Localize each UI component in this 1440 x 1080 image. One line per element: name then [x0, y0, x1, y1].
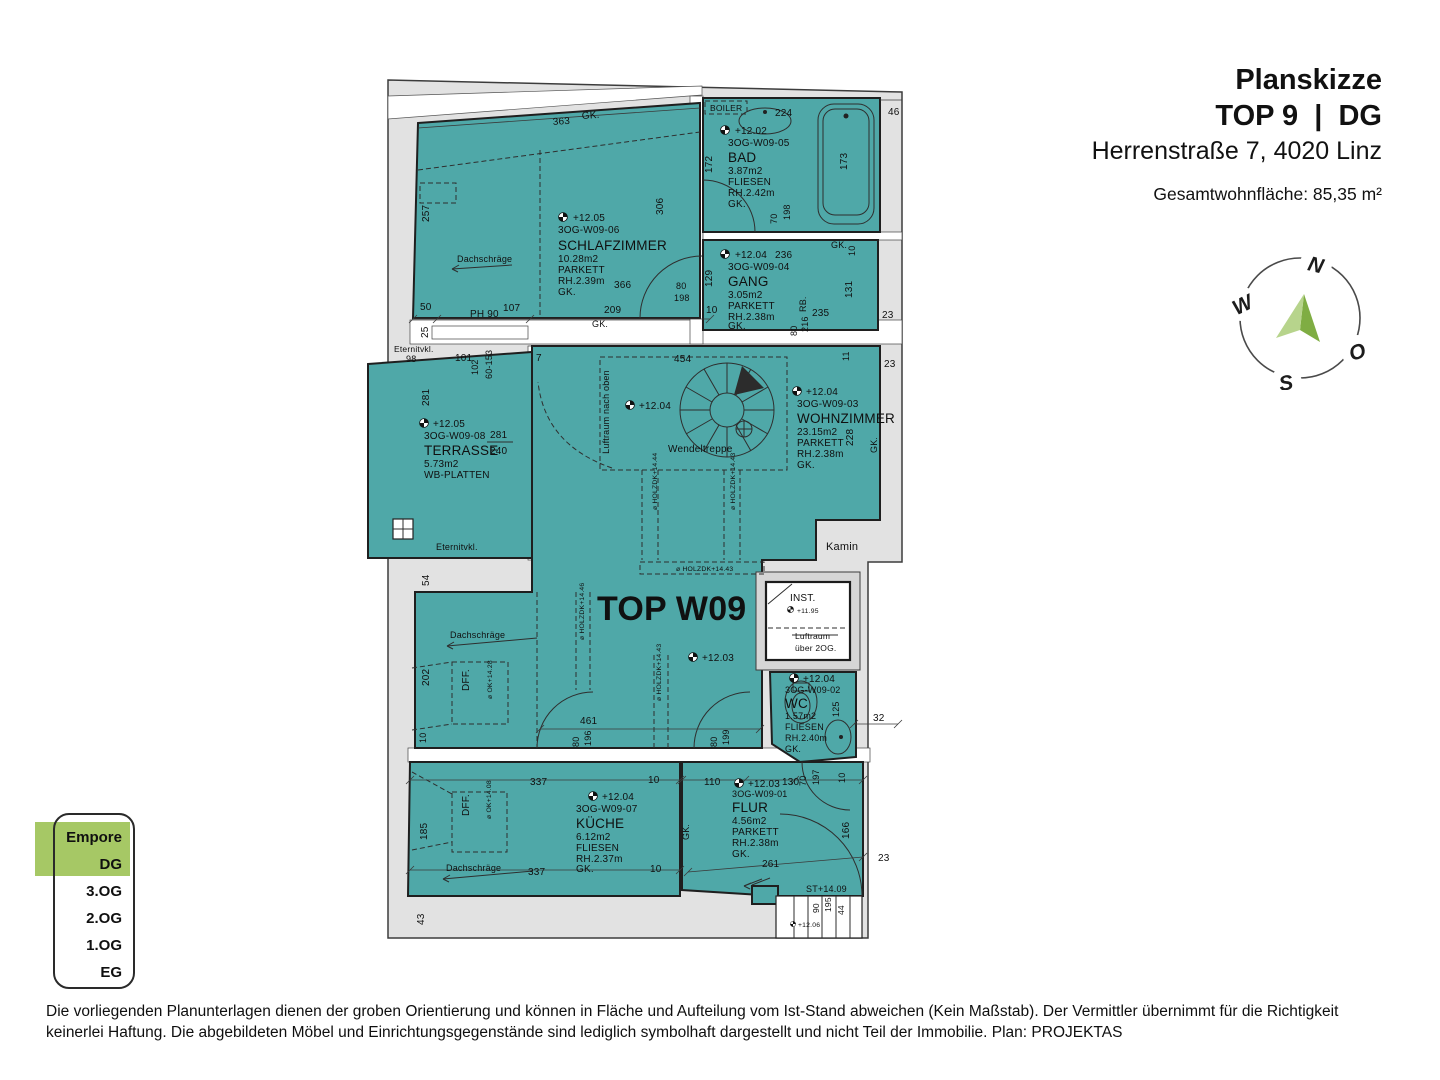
room-level: +12.04 — [806, 387, 838, 398]
disclaimer-text: Die vorliegenden Planunterlagen dienen d… — [46, 1002, 1394, 1044]
level-label: +12.03 — [702, 653, 734, 664]
unit-floor-subtitle: TOP 9 | DG — [1092, 98, 1382, 134]
dim-label: RB. — [798, 296, 808, 312]
dim-label: 198 — [782, 204, 792, 220]
room-name: BAD — [728, 150, 756, 165]
room-gk: GK. — [728, 321, 746, 332]
dim-label: 125 — [831, 701, 841, 717]
room-level: +12.04 — [735, 250, 767, 261]
dim-label: 60-153 — [484, 350, 494, 379]
dim-label: 337 — [530, 777, 548, 788]
room-level: +12.05 — [433, 419, 465, 430]
room-area: 6.12m2 — [576, 832, 611, 843]
room-gk: GK. — [797, 460, 815, 471]
dim-label: 306 — [655, 197, 666, 215]
dim-label: 235 — [812, 308, 830, 319]
dim-label: 185 — [419, 822, 430, 840]
compass-needle-light — [1276, 294, 1304, 338]
dim-label: 10 — [837, 773, 847, 783]
annotation: ø HOLZDK+14.43 — [676, 566, 733, 573]
room-finish: FLIESEN — [728, 177, 771, 188]
room-height: RH.2.42m — [728, 188, 775, 199]
dim-label: 70 — [769, 214, 779, 224]
dim-label: 461 — [580, 716, 598, 727]
dim-label: 366 — [614, 280, 632, 291]
floor-item-dg[interactable]: DG — [55, 851, 133, 878]
dim-label: 216 — [800, 316, 810, 332]
unit-label: TOP W09 — [597, 590, 746, 628]
dim-label: GK. — [869, 437, 879, 453]
room-code: 3OG-W09-01 — [732, 789, 788, 799]
room-finish: FLIESEN — [576, 843, 619, 854]
room-finish: PARKETT — [558, 265, 605, 276]
room-name: FLUR — [732, 800, 768, 815]
floor-item-empore[interactable]: Empore — [55, 824, 133, 851]
dim-label: 173 — [839, 152, 850, 170]
room-finish: FLIESEN — [785, 722, 824, 732]
room-finish: PARKETT — [797, 438, 844, 449]
dim-label: 54 — [421, 574, 432, 586]
annotation: DFF. — [461, 669, 472, 691]
annotation: über 2OG. — [795, 643, 837, 653]
dim-label: 107 — [503, 303, 521, 314]
annotation: ø OK+14.08 — [486, 780, 493, 819]
room-gk: GK. — [785, 744, 801, 754]
dim-label: 50 — [420, 302, 432, 313]
dim-label: 131 — [844, 280, 855, 298]
floor-selector: Empore DG 3.OG 2.OG 1.OG EG — [53, 813, 135, 989]
annotation: ø HOLZDK+14.44 — [652, 453, 659, 510]
annotation: ø HOLZDK+14.46 — [579, 583, 586, 640]
room-name: KÜCHE — [576, 816, 624, 831]
room-gk: GK. — [728, 199, 746, 210]
room-finish: PARKETT — [732, 827, 779, 838]
room-name: GANG — [728, 274, 769, 289]
room-level: +12.04 — [803, 674, 835, 685]
room-name: WC — [785, 696, 808, 711]
room-height: RH.2.38m — [732, 838, 779, 849]
inst-shaft — [756, 572, 860, 670]
dim-label: 166 — [841, 821, 852, 839]
room-gk: GK. — [576, 864, 594, 875]
room-code: 3OG-W09-03 — [797, 399, 859, 410]
dim-label: 10 — [650, 864, 662, 875]
dim-label: 363 — [552, 116, 570, 128]
room-code: 3OG-W09-06 — [558, 225, 620, 236]
annotation: DFF. — [461, 794, 472, 816]
dim-label: GK. — [681, 824, 691, 840]
room-area: 5.73m2 — [424, 459, 459, 470]
dim-label: 261 — [762, 859, 780, 870]
room-code: 3OG-W09-02 — [785, 685, 841, 695]
room-finish: WB-PLATTEN — [424, 470, 490, 481]
room-gk: GK. — [558, 287, 576, 298]
dim-label: 281 — [421, 388, 432, 406]
dim-label: 80 — [709, 737, 719, 747]
dim-label: 130 — [782, 777, 800, 788]
dim-label: 43 — [416, 913, 427, 925]
dim-label: 337 — [528, 867, 546, 878]
floor-item-1og[interactable]: 1.OG — [55, 932, 133, 959]
floor-plan: +12.05 3OG-W09-06 SCHLAFZIMMER 10.28m2 P… — [355, 70, 915, 950]
room-height: RH.2.38m — [797, 449, 844, 460]
dim-label: 80 — [676, 281, 686, 291]
dim-label: 281 — [490, 430, 508, 441]
dim-label: 25 — [420, 326, 431, 338]
annotation: INST. — [790, 593, 815, 604]
dim-label: 23 — [878, 853, 890, 864]
stair-step — [752, 886, 778, 904]
annotation: Kamin — [826, 541, 858, 553]
title-block: Planskizze TOP 9 | DG Herrenstraße 7, 40… — [1092, 62, 1382, 205]
annotation: ST+14.09 — [806, 884, 847, 894]
dim-label: 10 — [418, 733, 428, 743]
dim-label: 23 — [884, 359, 896, 370]
room-name: TERRASSE — [424, 443, 498, 458]
room-area: 1.57m2 — [785, 711, 816, 721]
compass-rose: N W O S — [1230, 240, 1370, 390]
room-code: 3OG-W09-07 — [576, 804, 638, 815]
dim-label: 240 — [490, 446, 508, 457]
dim-label: 202 — [421, 668, 432, 686]
annotation: Eternitvkl. — [394, 344, 434, 354]
room-code: 3OG-W09-04 — [728, 262, 790, 273]
dim-label: 195 — [823, 897, 833, 912]
level-label: +12.06 — [798, 922, 820, 929]
room-level: +12.02 — [735, 126, 767, 137]
dim-label: GK. — [831, 240, 847, 250]
room-area: 3.87m2 — [728, 166, 763, 177]
room-name: SCHLAFZIMMER — [558, 238, 667, 253]
level-label: +12.04 — [639, 401, 671, 412]
dim-label: 199 — [721, 729, 731, 745]
room-area: 4.56m2 — [732, 816, 767, 827]
dim-label: 70 — [798, 776, 808, 786]
address: Herrenstraße 7, 4020 Linz — [1092, 134, 1382, 168]
dim-label: 10 — [847, 246, 857, 256]
dim-label: 46 — [888, 107, 900, 118]
dim-label: GK. — [581, 110, 600, 122]
annotation: ø HOLZDK+14.43 — [730, 453, 737, 510]
room-level: +12.04 — [602, 792, 634, 803]
annotation: Dachschräge — [446, 863, 501, 873]
room-code: 3OG-W09-08 — [424, 431, 486, 442]
annotation: Luftraum nach oben — [601, 370, 611, 454]
room-height: RH.2.40m — [785, 733, 827, 743]
dim-label: 110 — [704, 777, 721, 788]
annotation: Luftraum — [795, 631, 830, 641]
dim-label: 90 — [811, 903, 821, 913]
room-finish: PARKETT — [728, 301, 775, 312]
annotation: BOILER — [710, 103, 742, 113]
dim-label: 257 — [421, 204, 432, 222]
dim-label: 129 — [704, 269, 715, 287]
dim-label: PH 90 — [470, 309, 499, 320]
dim-label: 80 — [789, 326, 799, 336]
level-label: +11.95 — [797, 608, 819, 615]
room-code: 3OG-W09-05 — [728, 138, 790, 149]
room-level: +12.05 — [573, 213, 605, 224]
floor-item-3og[interactable]: 3.OG — [55, 878, 133, 905]
room-height: RH.2.39m — [558, 276, 605, 287]
annotation: Wendeltreppe — [668, 444, 733, 455]
dim-label: 196 — [583, 730, 593, 746]
page-title: Planskizze — [1092, 62, 1382, 98]
total-area: Gesamtwohnfläche: 85,35 m² — [1092, 184, 1382, 205]
dim-label: 44 — [836, 905, 846, 915]
dim-label: 98 — [406, 354, 416, 364]
floor-item-2og[interactable]: 2.OG — [55, 905, 133, 932]
dim-label: 454 — [674, 354, 692, 365]
terrasse-window — [393, 519, 413, 539]
dim-label: 198 — [674, 293, 690, 303]
room-area: 23.15m2 — [797, 427, 838, 438]
dim-label: 236 — [775, 250, 793, 261]
dim-label: 102 — [470, 359, 480, 375]
dim-label: 23 — [882, 310, 894, 321]
dim-label: 32 — [873, 713, 885, 724]
dim-label: 80 — [571, 737, 581, 747]
annotation: ø OK+14.28 — [487, 660, 494, 699]
dim-label: GK. — [592, 319, 608, 329]
floor-item-eg[interactable]: EG — [55, 959, 133, 986]
dim-label: 7 — [536, 353, 542, 364]
dim-label: 197 — [811, 769, 821, 785]
dim-label: 209 — [604, 305, 622, 316]
dim-label: 10 — [706, 305, 718, 316]
room-area: 10.28m2 — [558, 254, 599, 265]
annotation: Dachschräge — [450, 630, 505, 640]
dim-label: 228 — [845, 428, 856, 446]
room-gk: GK. — [732, 849, 750, 860]
annotation: ø HOLZDK+14.43 — [656, 644, 663, 701]
dim-label: 172 — [704, 155, 715, 173]
dim-label: 10 — [648, 775, 660, 786]
room-name: WOHNZIMMER — [797, 411, 895, 426]
annotation: Eternitvkl. — [436, 542, 478, 552]
dim-label: 11 — [841, 351, 851, 361]
room-area: 3.05m2 — [728, 290, 763, 301]
page: Planskizze TOP 9 | DG Herrenstraße 7, 40… — [0, 0, 1440, 1080]
annotation: Dachschräge — [457, 254, 512, 264]
dim-label: 224 — [775, 108, 793, 119]
